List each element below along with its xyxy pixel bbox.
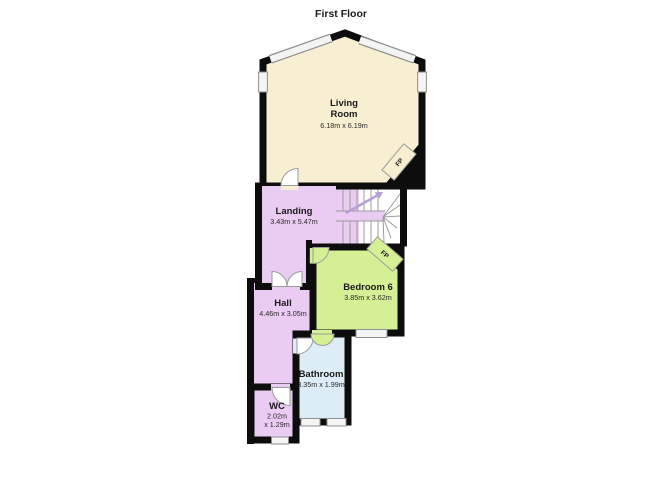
living-room-window-left bbox=[259, 72, 268, 92]
bathroom-label: Bathroom 3.35m x 1.99m bbox=[297, 369, 345, 389]
room-dimensions: 3.43m x 5.47m bbox=[270, 217, 318, 226]
room-dimensions: 3.35m x 1.99m bbox=[297, 380, 345, 389]
wall-segment bbox=[306, 240, 312, 290]
room-name: Bedroom 6 bbox=[343, 282, 393, 293]
floorplan-drawing: FP FP First Floor Living Room 6.18m x 6.… bbox=[0, 0, 668, 485]
room-name: Living bbox=[330, 98, 358, 109]
room-name: Landing bbox=[276, 206, 313, 217]
floorplan-page: FP FP First Floor Living Room 6.18m x 6.… bbox=[0, 0, 668, 485]
plan-title: First Floor bbox=[315, 8, 367, 20]
room-dimensions: x 1.29m bbox=[264, 420, 290, 429]
room-name: Room bbox=[331, 109, 358, 120]
wc-window bbox=[272, 437, 289, 444]
bathroom-window-right bbox=[327, 419, 346, 427]
landing-label: Landing 3.43m x 5.47m bbox=[270, 206, 318, 226]
room-name: Bathroom bbox=[299, 369, 344, 380]
bedroom6-window bbox=[356, 330, 387, 338]
wall-segment bbox=[255, 283, 272, 290]
staircase bbox=[336, 190, 400, 244]
room-dimensions: 3.85m x 3.62m bbox=[344, 293, 392, 302]
bathroom-window-left bbox=[301, 419, 320, 427]
wall-segment bbox=[400, 183, 407, 247]
wall-segment bbox=[255, 183, 262, 288]
room-name: WC bbox=[269, 401, 285, 412]
room-name: Hall bbox=[274, 298, 291, 309]
living-room-window-right bbox=[418, 72, 427, 92]
room-dimensions: 6.18m x 6.19m bbox=[320, 121, 368, 130]
room-dimensions: 4.46m x 3.05m bbox=[259, 309, 307, 318]
bedroom6-label: Bedroom 6 3.85m x 3.62m bbox=[343, 282, 393, 302]
